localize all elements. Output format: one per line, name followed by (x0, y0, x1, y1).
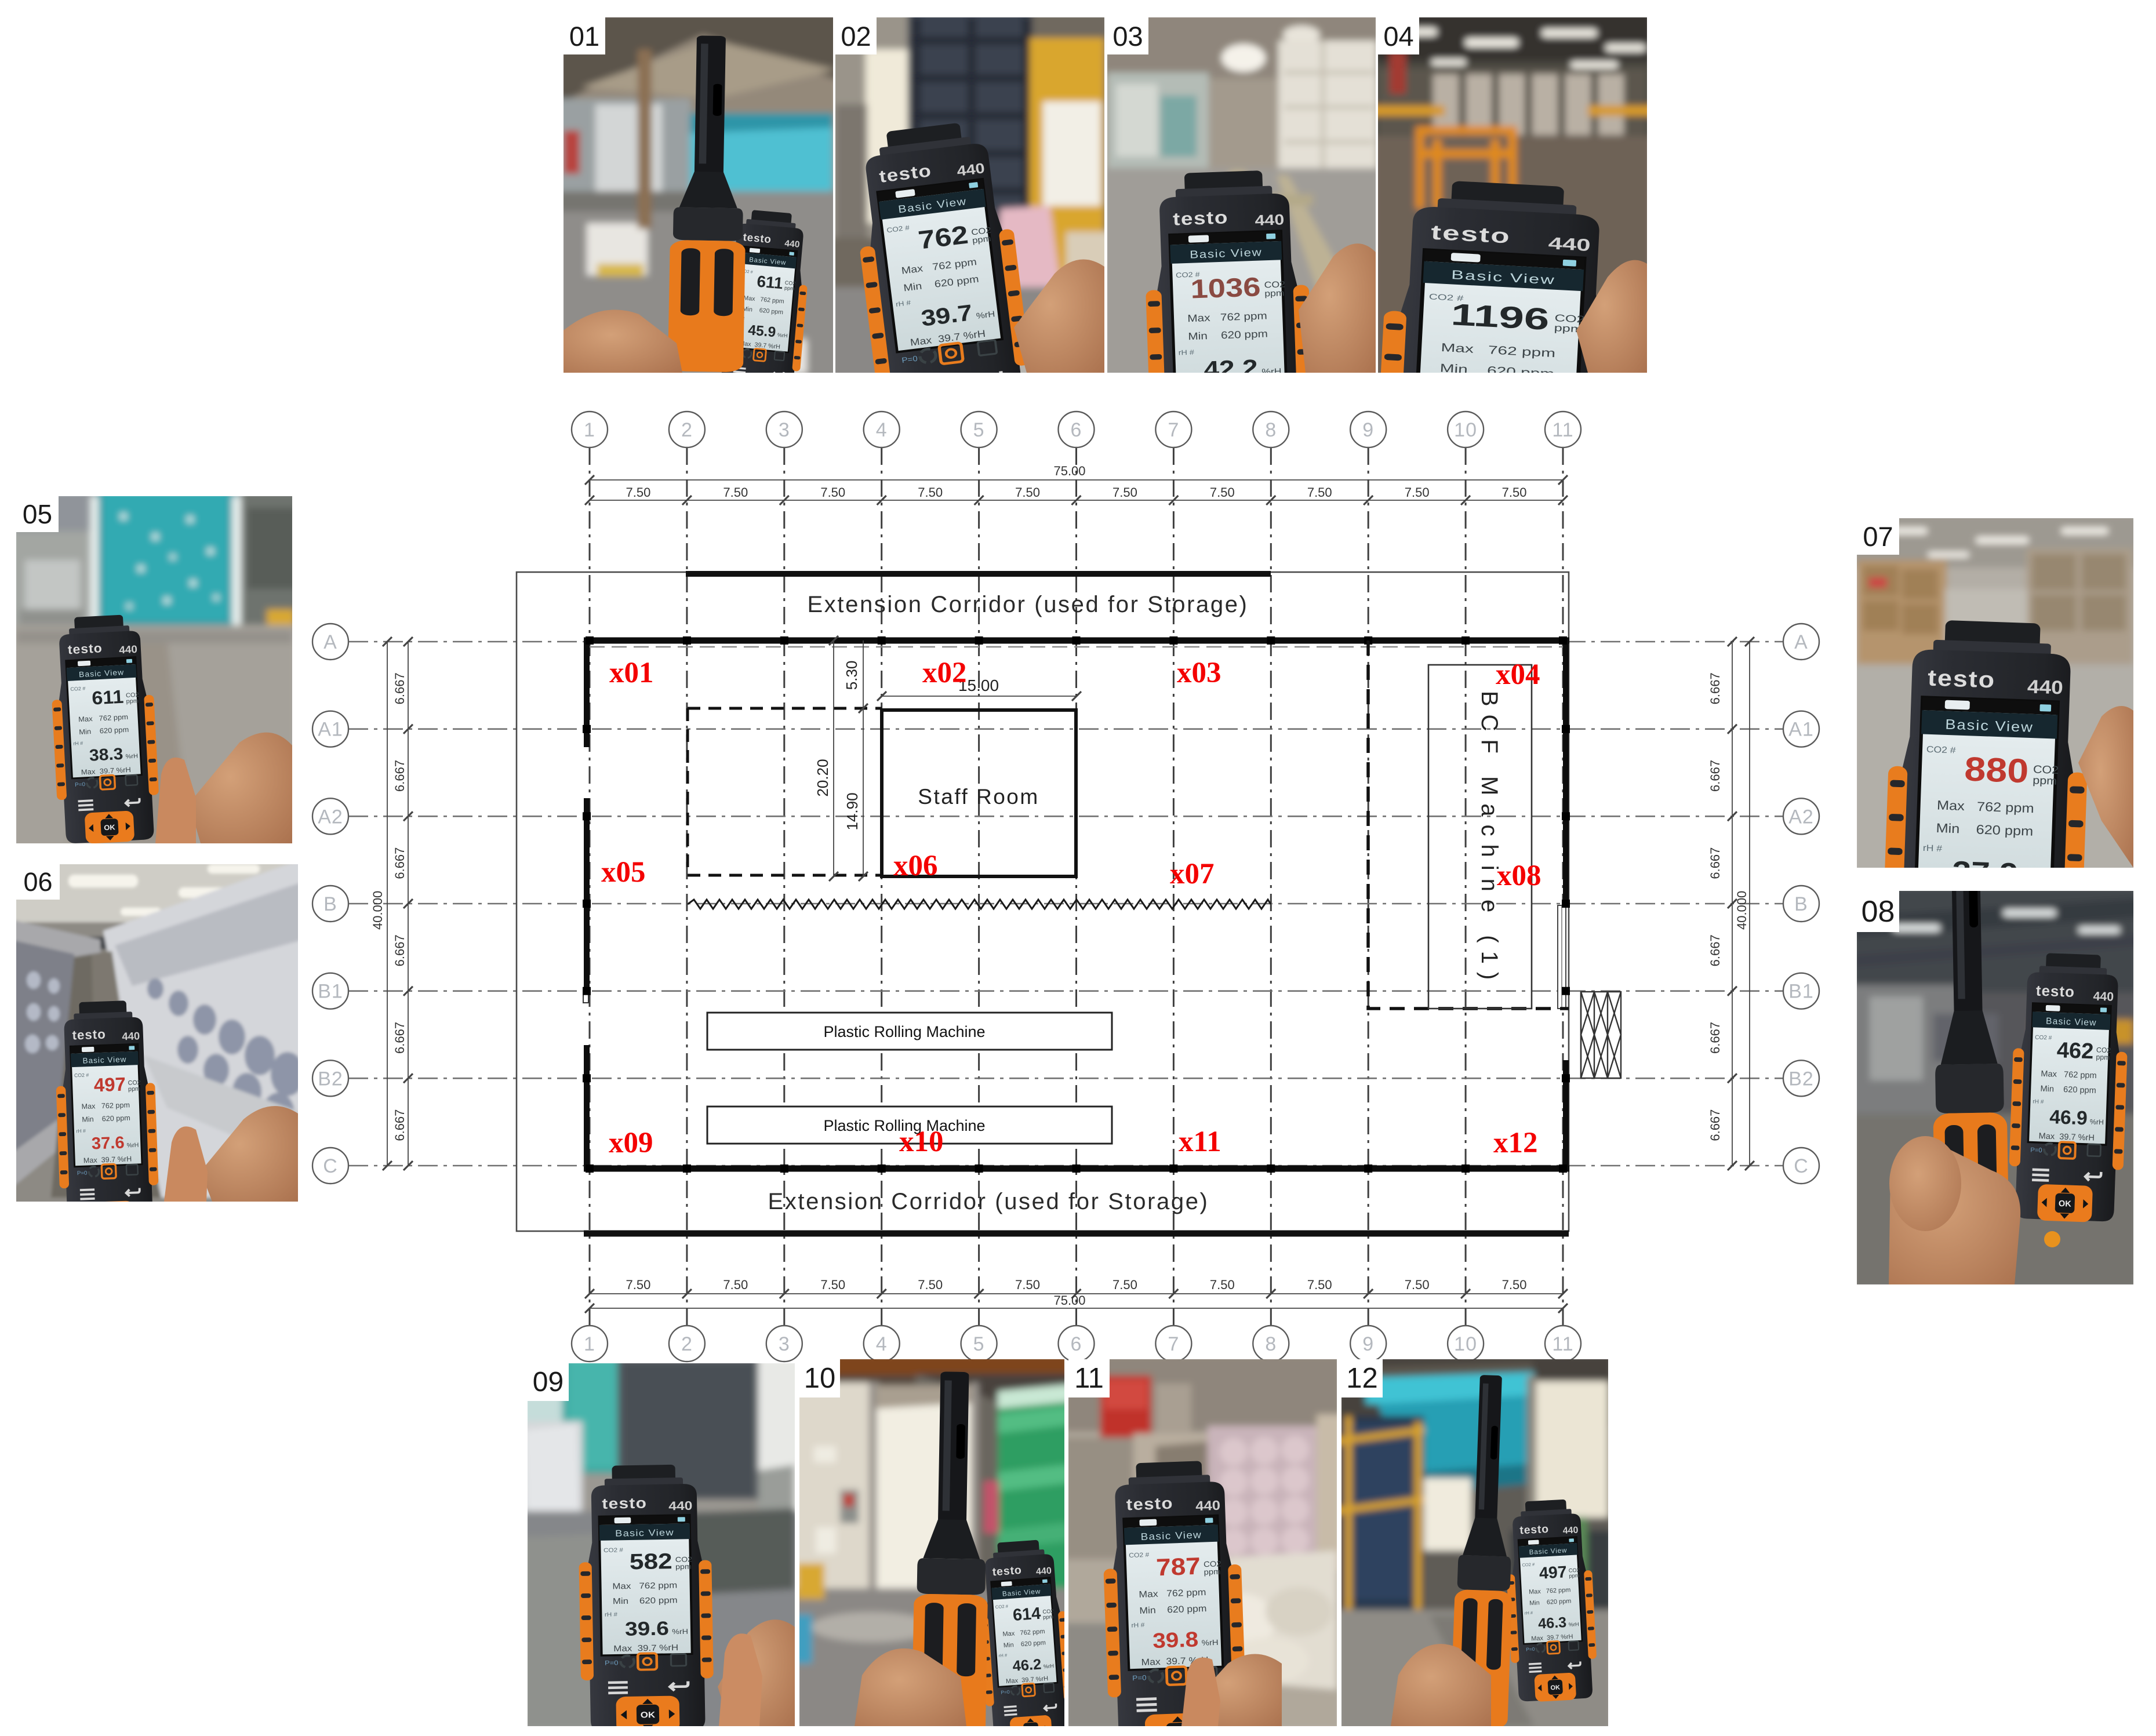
svg-text:6.667: 6.667 (1708, 1109, 1722, 1141)
svg-text:1196: 1196 (1450, 298, 1550, 337)
svg-text:2: 2 (681, 419, 693, 441)
svg-text:8: 8 (1265, 419, 1277, 441)
svg-text:B2: B2 (318, 1068, 343, 1090)
svg-text:3: 3 (779, 1333, 790, 1355)
svg-text:C: C (1794, 1155, 1809, 1177)
svg-text:38.3: 38.3 (89, 745, 123, 765)
svg-text:x02: x02 (922, 657, 967, 689)
svg-text:7.50: 7.50 (1112, 485, 1137, 500)
svg-text:20.20: 20.20 (814, 759, 831, 796)
svg-text:7.50: 7.50 (1405, 485, 1430, 500)
svg-text:7.50: 7.50 (626, 485, 651, 500)
svg-text:14.90: 14.90 (844, 792, 861, 830)
svg-text:7.50: 7.50 (1015, 1278, 1040, 1292)
svg-text:x12: x12 (1493, 1127, 1538, 1159)
svg-text:787: 787 (1155, 1553, 1201, 1581)
svg-text:880: 880 (1964, 750, 2029, 790)
svg-text:6.667: 6.667 (392, 672, 407, 704)
svg-text:1: 1 (584, 419, 595, 441)
svg-text:37.6: 37.6 (91, 1134, 125, 1153)
svg-text:x06: x06 (893, 850, 938, 882)
svg-text:Staff Room: Staff Room (918, 785, 1039, 809)
svg-text:B: B (1794, 893, 1808, 915)
svg-text:9: 9 (1362, 1333, 1374, 1355)
svg-text:x05: x05 (601, 856, 646, 889)
svg-text:1036: 1036 (1190, 271, 1261, 304)
svg-text:Plastic Rolling Machine: Plastic Rolling Machine (823, 1023, 985, 1040)
svg-text:7.50: 7.50 (626, 1278, 651, 1292)
svg-text:7.50: 7.50 (1015, 485, 1040, 500)
svg-text:9: 9 (1362, 419, 1374, 441)
svg-text:4: 4 (876, 1333, 888, 1355)
svg-text:10: 10 (1454, 1333, 1477, 1355)
svg-text:5: 5 (973, 1333, 985, 1355)
svg-text:7.50: 7.50 (1210, 1278, 1235, 1292)
svg-text:614: 614 (1012, 1604, 1041, 1625)
svg-text:C: C (323, 1155, 338, 1177)
svg-text:x07: x07 (1170, 858, 1215, 890)
svg-text:6.667: 6.667 (392, 847, 407, 879)
svg-text:2: 2 (681, 1333, 693, 1355)
svg-text:42.2: 42.2 (1204, 355, 1259, 373)
svg-text:46.3: 46.3 (1537, 1614, 1566, 1632)
svg-text:x08: x08 (1497, 860, 1541, 892)
svg-text:46.2: 46.2 (1012, 1657, 1042, 1675)
svg-text:1: 1 (584, 1333, 595, 1355)
svg-text:8: 8 (1265, 1333, 1277, 1355)
svg-text:6.667: 6.667 (1708, 1022, 1722, 1054)
svg-text:40.000: 40.000 (370, 891, 385, 930)
svg-text:Extension Corridor (used for S: Extension Corridor (used for Storage) (768, 1189, 1209, 1214)
svg-text:11: 11 (1552, 1333, 1573, 1355)
svg-text:6.667: 6.667 (392, 1109, 407, 1141)
svg-text:6.667: 6.667 (392, 1022, 407, 1054)
svg-text:40.000: 40.000 (1735, 891, 1749, 930)
svg-text:B1: B1 (318, 981, 343, 1003)
svg-text:BCF Machine (1): BCF Machine (1) (1477, 691, 1502, 988)
svg-text:7.50: 7.50 (918, 1278, 943, 1292)
svg-text:39.6: 39.6 (625, 1617, 670, 1640)
svg-text:75.00: 75.00 (1053, 464, 1085, 478)
svg-text:6.667: 6.667 (1708, 934, 1722, 966)
svg-text:A: A (323, 631, 337, 653)
svg-text:A1: A1 (318, 719, 343, 741)
svg-text:7.50: 7.50 (1210, 485, 1235, 500)
svg-text:7.50: 7.50 (723, 485, 748, 500)
svg-text:6: 6 (1071, 1333, 1082, 1355)
svg-text:497: 497 (1539, 1563, 1567, 1582)
svg-text:10: 10 (1454, 419, 1477, 441)
svg-text:4: 4 (876, 419, 888, 441)
svg-text:39.8: 39.8 (1152, 1628, 1199, 1653)
svg-text:A2: A2 (1788, 806, 1814, 828)
svg-text:Extension Corridor (used for S: Extension Corridor (used for Storage) (808, 592, 1249, 617)
svg-text:11: 11 (1552, 419, 1573, 441)
svg-text:x11: x11 (1179, 1126, 1221, 1158)
svg-text:5: 5 (973, 419, 985, 441)
svg-text:46.9: 46.9 (2049, 1107, 2088, 1129)
svg-text:A: A (1794, 631, 1808, 653)
svg-text:6.667: 6.667 (392, 934, 407, 966)
svg-text:7.50: 7.50 (820, 485, 845, 500)
svg-text:762: 762 (917, 220, 970, 255)
svg-text:6.667: 6.667 (392, 760, 407, 792)
svg-text:3: 3 (779, 419, 790, 441)
svg-text:B1: B1 (1788, 981, 1814, 1003)
svg-text:x10: x10 (899, 1126, 944, 1158)
svg-text:x01: x01 (609, 657, 654, 689)
svg-text:611: 611 (756, 272, 784, 293)
svg-text:462: 462 (2056, 1038, 2094, 1064)
svg-text:7.50: 7.50 (1502, 485, 1527, 500)
svg-text:5.30: 5.30 (843, 661, 860, 690)
svg-text:7.50: 7.50 (723, 1278, 748, 1292)
svg-text:6.667: 6.667 (1708, 760, 1722, 792)
svg-text:6.667: 6.667 (1708, 672, 1722, 704)
svg-text:75.00: 75.00 (1053, 1293, 1085, 1308)
svg-text:37.9: 37.9 (1951, 854, 2019, 868)
svg-text:x03: x03 (1177, 657, 1221, 689)
svg-text:611: 611 (92, 686, 125, 709)
svg-text:45.9: 45.9 (747, 322, 776, 340)
svg-text:6.667: 6.667 (1708, 847, 1722, 879)
svg-text:7.50: 7.50 (918, 485, 943, 500)
svg-text:x09: x09 (609, 1127, 653, 1159)
svg-text:7.50: 7.50 (820, 1278, 845, 1292)
svg-text:B2: B2 (1788, 1068, 1814, 1090)
svg-text:7.50: 7.50 (1307, 485, 1332, 500)
svg-text:7: 7 (1168, 1333, 1179, 1355)
svg-text:497: 497 (93, 1073, 126, 1096)
svg-text:7.50: 7.50 (1307, 1278, 1332, 1292)
svg-text:6: 6 (1071, 419, 1082, 441)
svg-text:x04: x04 (1496, 658, 1540, 691)
svg-text:7.50: 7.50 (1502, 1278, 1527, 1292)
svg-text:A1: A1 (1788, 719, 1814, 741)
svg-text:7.50: 7.50 (1405, 1278, 1430, 1292)
svg-text:582: 582 (630, 1549, 672, 1574)
svg-text:A2: A2 (318, 806, 343, 828)
svg-text:7: 7 (1168, 419, 1179, 441)
svg-text:7.50: 7.50 (1112, 1278, 1137, 1292)
svg-text:B: B (323, 893, 337, 915)
